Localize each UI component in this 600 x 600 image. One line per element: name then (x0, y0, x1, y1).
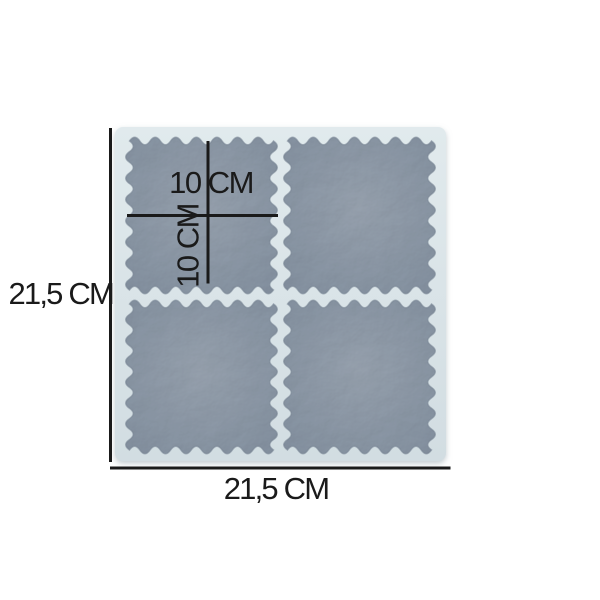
cavity-bottom-right (284, 300, 435, 453)
cavity-bottom-left (126, 300, 278, 453)
overall-width-label: 21,5 CM (224, 473, 329, 504)
cavity-top-right (284, 137, 435, 293)
overall-height-label: 21,5 CM (8, 278, 113, 309)
cavity-height-label: 10 CM (173, 204, 204, 288)
product-photo: 21,5 CM 21,5 CM 10 CM 10 CM (0, 0, 600, 600)
cavity-width-label: 10 CM (169, 167, 253, 198)
